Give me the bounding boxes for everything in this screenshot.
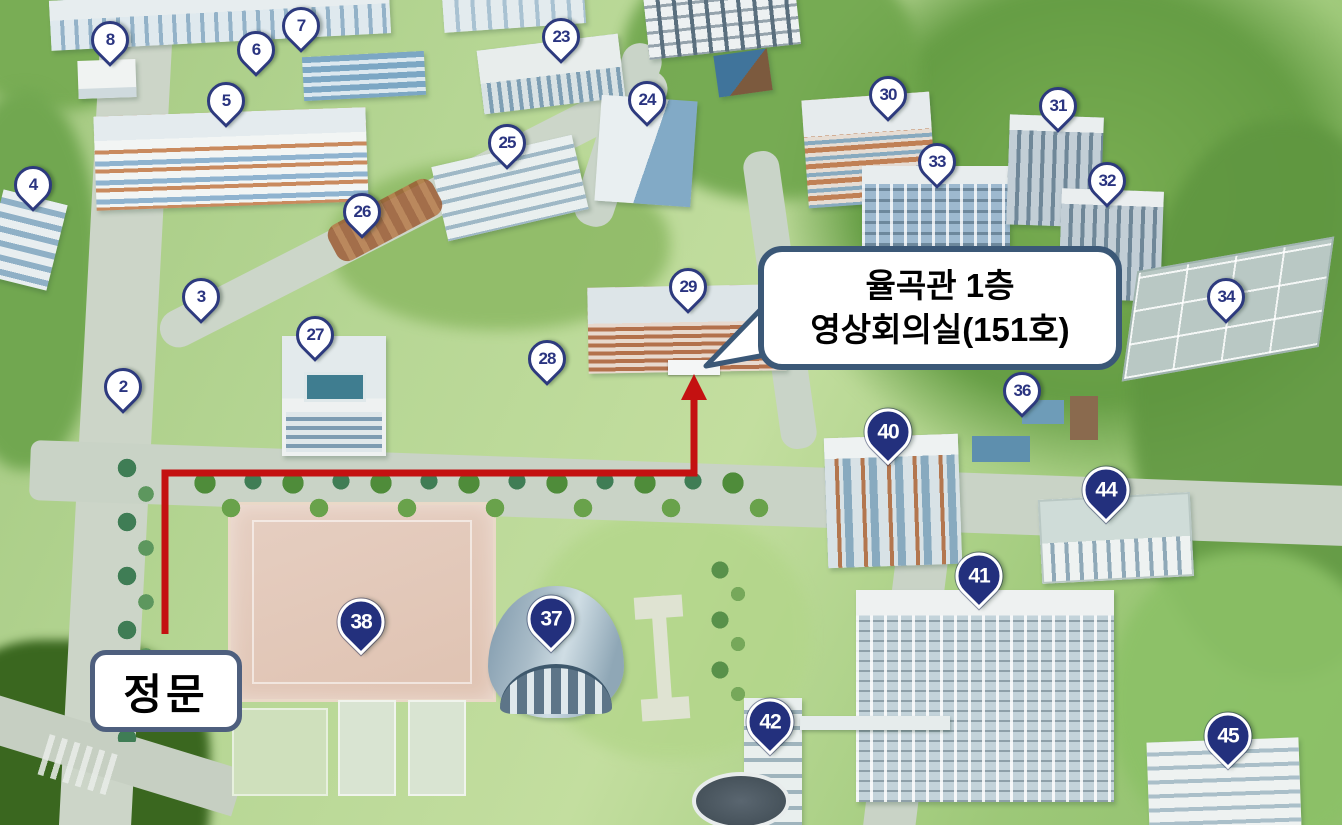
map-pin-25[interactable]: 25 [480,116,534,170]
pin-number: 31 [1042,90,1074,122]
map-pin-34[interactable]: 34 [1199,270,1253,324]
map-pin-23[interactable]: 23 [534,10,588,64]
pin-number: 26 [346,196,378,228]
pin-number: 23 [545,21,577,53]
pin-number: 42 [750,702,791,743]
callout-line2: 영상회의실(151호) [810,308,1069,352]
pin-number: 7 [285,10,317,42]
pin-number: 40 [868,412,909,453]
map-pin-42[interactable]: 42 [737,689,803,755]
pin-number: 3 [185,281,217,313]
map-pin-30[interactable]: 30 [861,68,915,122]
map-pin-31[interactable]: 31 [1031,79,1085,133]
pin-number: 33 [921,146,953,178]
map-pin-28[interactable]: 28 [520,332,574,386]
map-pin-7[interactable]: 7 [274,0,328,53]
pin-number: 29 [672,271,704,303]
pin-number: 8 [94,24,126,56]
gate-label-text: 정문 [123,661,208,722]
pin-number: 24 [631,84,663,116]
pin-number: 4 [17,169,49,201]
map-pin-32[interactable]: 32 [1080,154,1134,208]
pin-number: 30 [872,79,904,111]
campus-map: 2345678232425262728293031323334363738404… [0,0,1342,825]
pin-number: 5 [210,85,242,117]
pin-number: 2 [107,371,139,403]
pin-number: 44 [1086,470,1127,511]
pin-number: 28 [531,343,563,375]
map-pin-40[interactable]: 40 [855,399,921,465]
pin-number: 38 [341,602,382,643]
pin-number: 34 [1210,281,1242,313]
pin-number: 41 [959,556,1000,597]
map-pin-4[interactable]: 4 [6,158,60,212]
map-pin-27[interactable]: 27 [288,308,342,362]
map-pin-6[interactable]: 6 [229,23,283,77]
map-pin-2[interactable]: 2 [96,360,150,414]
map-pin-24[interactable]: 24 [620,73,674,127]
map-pin-8[interactable]: 8 [83,13,137,67]
pin-number: 6 [240,34,272,66]
map-pin-29[interactable]: 29 [661,260,715,314]
pin-number: 37 [531,599,572,640]
pin-number: 27 [299,319,331,351]
map-pin-37[interactable]: 37 [518,586,584,652]
main-gate-label: 정문 [90,650,242,732]
callout-line1: 율곡관 1층 [866,264,1015,308]
pin-number: 36 [1006,375,1038,407]
pin-number: 32 [1091,165,1123,197]
destination-callout: 율곡관 1층 영상회의실(151호) [758,246,1122,370]
pin-number: 25 [491,127,523,159]
map-pin-33[interactable]: 33 [910,135,964,189]
map-pin-3[interactable]: 3 [174,270,228,324]
map-pin-36[interactable]: 36 [995,364,1049,418]
map-pin-26[interactable]: 26 [335,185,389,239]
pin-number: 45 [1208,716,1249,757]
map-pin-41[interactable]: 41 [946,543,1012,609]
map-pin-44[interactable]: 44 [1073,457,1139,523]
map-pin-38[interactable]: 38 [328,589,394,655]
map-pin-5[interactable]: 5 [199,74,253,128]
map-pin-45[interactable]: 45 [1195,703,1261,769]
